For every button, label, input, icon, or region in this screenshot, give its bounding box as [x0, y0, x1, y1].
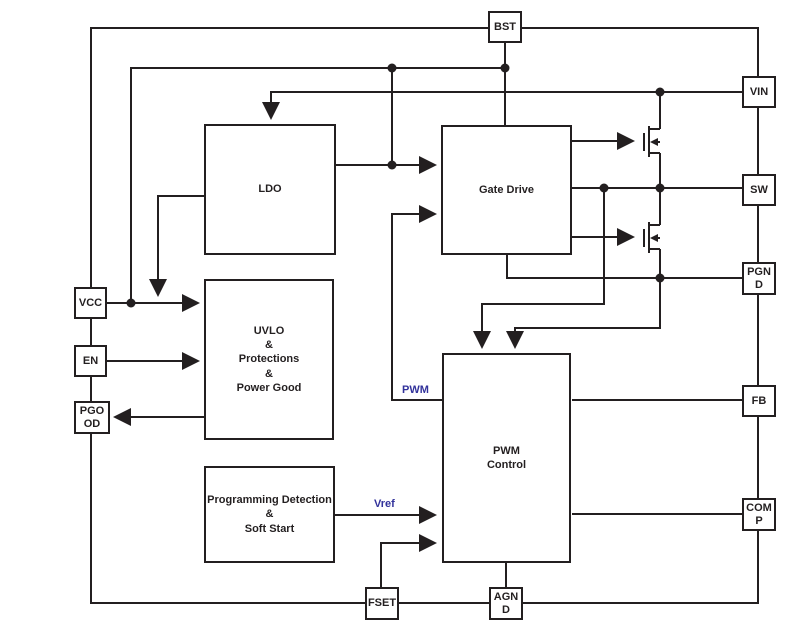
ldo-block: LDO — [204, 124, 336, 255]
fset-net — [381, 543, 435, 587]
ldo-output-net — [158, 196, 204, 295]
pin-pgood: PGO OD — [74, 401, 110, 434]
uvlo-protections-power-good-block: UVLO & Protections & Power Good — [204, 279, 334, 440]
pgnd-net — [507, 255, 742, 278]
pin-fset: FSET — [365, 587, 399, 620]
chip-boundary — [91, 28, 758, 603]
pin-fb: FB — [742, 385, 776, 417]
pwm-control-block: PWM Control — [442, 353, 571, 563]
pin-vin: VIN — [742, 76, 776, 108]
high-side-mosfet — [644, 126, 660, 188]
pin-bst: BST — [488, 11, 522, 43]
programming-detection-soft-start-block: Programming Detection & Soft Start — [204, 466, 335, 563]
pwm-net — [392, 214, 442, 400]
vref-signal-label: Vref — [374, 498, 395, 510]
pin-pgnd: PGN D — [742, 262, 776, 295]
vin-net — [271, 92, 742, 129]
pin-sw: SW — [742, 174, 776, 206]
wiring-layer — [0, 0, 792, 632]
pin-vcc: VCC — [74, 287, 107, 319]
pwm-signal-label: PWM — [402, 384, 429, 396]
gate-drive-block: Gate Drive — [441, 125, 572, 255]
pgnd-sense-net — [515, 278, 660, 347]
pin-comp: COM P — [742, 498, 776, 531]
block-diagram-canvas: LDO Gate Drive UVLO & Protections & Powe… — [0, 0, 792, 632]
low-side-mosfet — [644, 188, 660, 278]
pin-agnd: AGN D — [489, 587, 523, 620]
pin-en: EN — [74, 345, 107, 377]
